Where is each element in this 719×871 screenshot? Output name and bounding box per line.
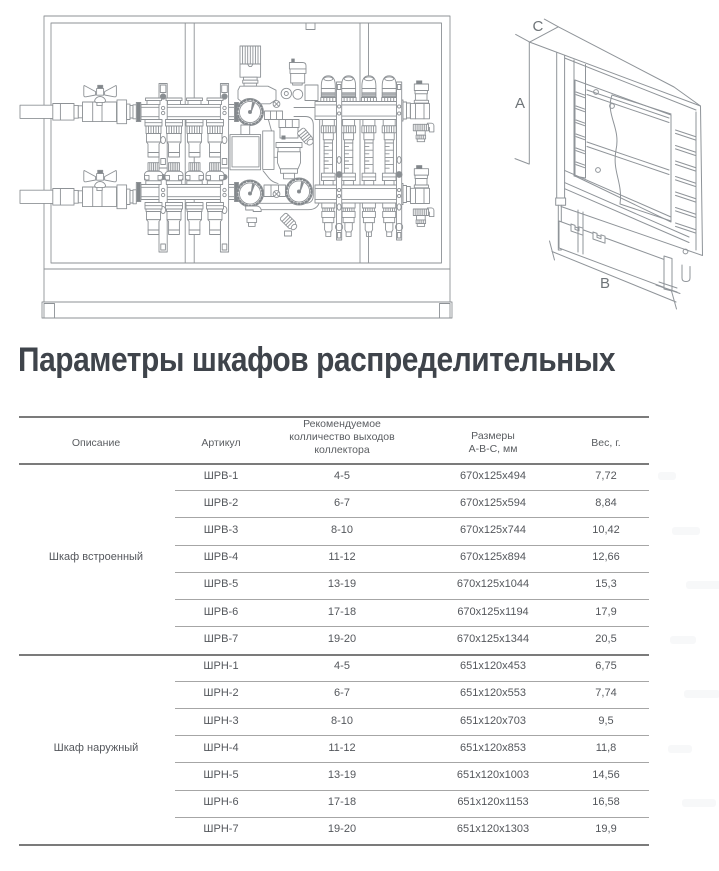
svg-text:A: A bbox=[515, 95, 525, 112]
svg-text:B: B bbox=[600, 275, 610, 292]
svg-text:C: C bbox=[533, 18, 544, 35]
